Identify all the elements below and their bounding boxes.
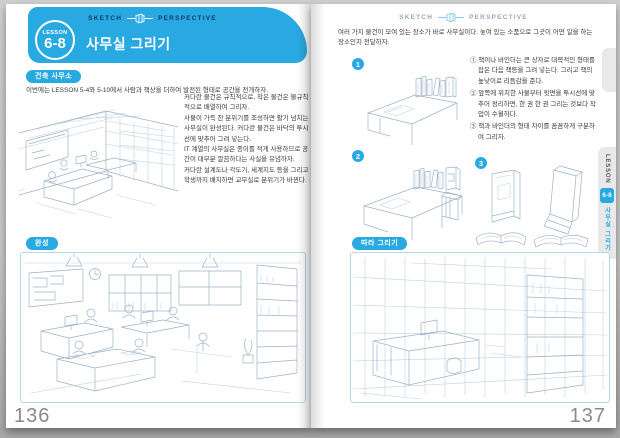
step-number-label: 1	[356, 60, 360, 69]
office-complete-sketch	[21, 253, 305, 401]
edge-tab-lesson-label: LESSON	[604, 154, 610, 183]
body-paragraph: 커다란 설계도나 각도기, 세계지도 등을 그리고 학생까지 배치하면 교무실로…	[184, 166, 309, 187]
page-left: SKETCH PERSPECTIVE LESSON 6-8 사무실 그리기 건축…	[6, 4, 311, 428]
perspective-cube-icon	[438, 12, 464, 23]
note-item: ③ 책과 바인더의 형태 차이를 꼼꼼하게 구분하여 그리자.	[470, 122, 598, 143]
lesson-edge-tab: LESSON 6-8 사무실 그리기	[598, 147, 616, 259]
header-sketch-label: SKETCH	[399, 14, 433, 21]
header-perspective-label: PERSPECTIVE	[158, 15, 217, 22]
intro-text-right: 여러 가지 물건이 모여 있는 장소가 바로 사무실이다. 놓여 있는 소품으로…	[338, 28, 600, 49]
office-rough-sketch	[16, 97, 181, 234]
lesson-badge: LESSON 6-8	[35, 20, 75, 60]
page-right: SKETCH PERSPECTIVE 여러 가지 물건이 모여 있는 장소가 바…	[311, 4, 616, 428]
section-badge: 건축 사무소	[26, 70, 81, 83]
lesson-title: 사무실 그리기	[86, 34, 171, 54]
header-perspective-label: PERSPECTIVE	[469, 14, 528, 21]
book-spread: SKETCH PERSPECTIVE LESSON 6-8 사무실 그리기 건축…	[0, 0, 620, 438]
complete-badge: 완성	[26, 237, 58, 250]
edge-tab-lesson-number: 6-8	[600, 188, 614, 203]
lesson-badge-number: 6-8	[44, 36, 66, 51]
step2-sketch	[358, 162, 475, 246]
note-item: ① 책이나 바인더는 큰 상자로 대략적인 형태를 잡은 다음 책등을 그려 넣…	[470, 56, 598, 87]
page-number-right: 137	[570, 405, 606, 428]
step-number-2: 2	[352, 150, 364, 162]
lesson-banner: SKETCH PERSPECTIVE LESSON 6-8 사무실 그리기	[28, 7, 307, 63]
perspective-grid-sketch	[351, 253, 609, 401]
running-header-right: SKETCH PERSPECTIVE	[311, 12, 616, 23]
edge-tab-lesson-title: 사무실 그리기	[603, 207, 612, 252]
perspective-cube-icon	[127, 13, 153, 24]
notes-column: ① 책이나 바인더는 큰 상자로 대략적인 형태를 잡은 다음 책등을 그려 넣…	[470, 56, 598, 145]
body-paragraph: 사물이 가득 찬 분위기를 조성하면 활기 넘치는 사무실이 완성된다. 커다란…	[184, 114, 309, 145]
completed-sketch-frame	[20, 252, 306, 403]
step-number-label: 2	[356, 152, 360, 161]
step1-sketch	[360, 72, 465, 150]
note-item: ② 앞쪽에 위치한 사물부터 윗면을 투시선에 맞추어 정리하면, 한 권 한 …	[470, 89, 598, 120]
step-number-1: 1	[352, 58, 364, 70]
chapter-edge-tab	[602, 48, 616, 92]
follow-along-badge: 따라 그리기	[352, 237, 407, 250]
step3-sketch	[468, 164, 595, 252]
body-paragraph: IT 계열의 사무실은 종이를 적게 사용하므로 공간이 대부분 깔끔하다는 사…	[184, 145, 309, 166]
follow-along-sketch-frame	[350, 252, 610, 403]
body-paragraph: 커다란 물건은 규칙적으로, 작은 물건은 불규칙적으로 배열하여 그리자.	[184, 93, 309, 114]
page-number-left: 136	[14, 405, 50, 428]
body-text-column: 커다란 물건은 규칙적으로, 작은 물건은 불규칙적으로 배열하여 그리자. 사…	[184, 93, 309, 187]
header-sketch-label: SKETCH	[88, 15, 122, 22]
